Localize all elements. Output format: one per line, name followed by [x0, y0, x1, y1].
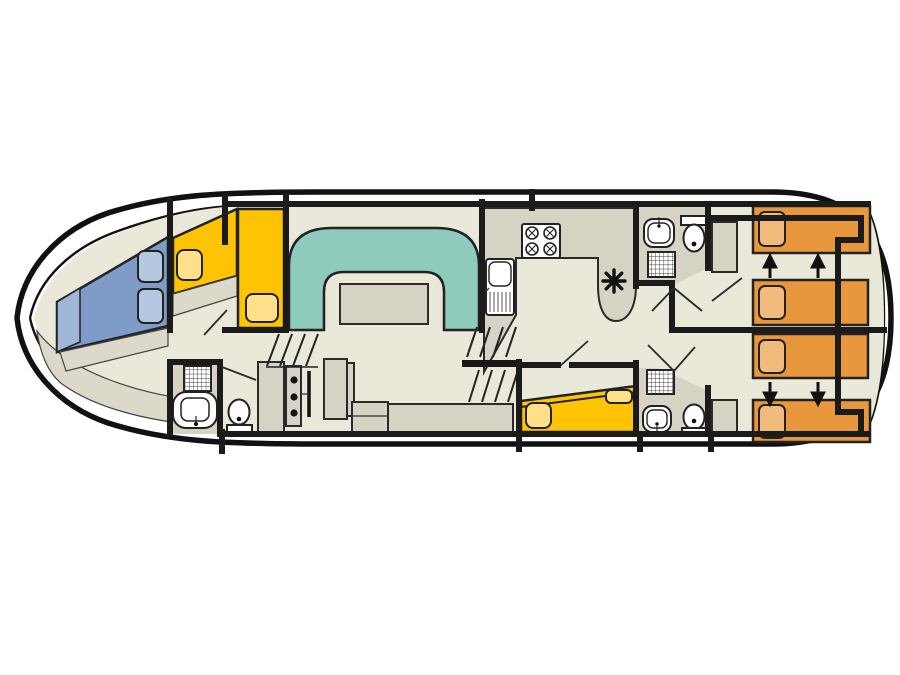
- wardrobe-top: [712, 222, 737, 272]
- heater-asterisk-icon: [603, 270, 625, 292]
- boat-floorplan: [0, 0, 900, 675]
- stove: [522, 224, 560, 258]
- berth-pillow: [246, 294, 278, 322]
- step-seat: [352, 402, 388, 432]
- wardrobe-bottom: [712, 400, 737, 433]
- washbasin-icon: [644, 217, 674, 247]
- toilet-icon: [227, 400, 252, 433]
- v-berth-pillow: [138, 289, 163, 323]
- saloon-bench: [352, 402, 513, 432]
- toilet-icon: [682, 405, 707, 436]
- bed-pillow: [526, 403, 551, 428]
- floorplan-canvas: [0, 0, 900, 675]
- cabinet: [258, 362, 284, 432]
- helm-seat: [324, 359, 347, 419]
- berth-pillow: [177, 250, 202, 280]
- v-berth-pillow: [138, 251, 163, 282]
- galley-sink: [482, 259, 514, 315]
- bed-pillow: [606, 390, 632, 403]
- bed-pillow: [759, 286, 785, 319]
- helm-instruments: [290, 376, 297, 416]
- dinette-table: [340, 284, 428, 324]
- bench-seat: [388, 404, 513, 432]
- bed-pillow: [759, 340, 785, 373]
- washbasin-icon: [173, 392, 217, 428]
- washbasin-icon: [643, 406, 671, 432]
